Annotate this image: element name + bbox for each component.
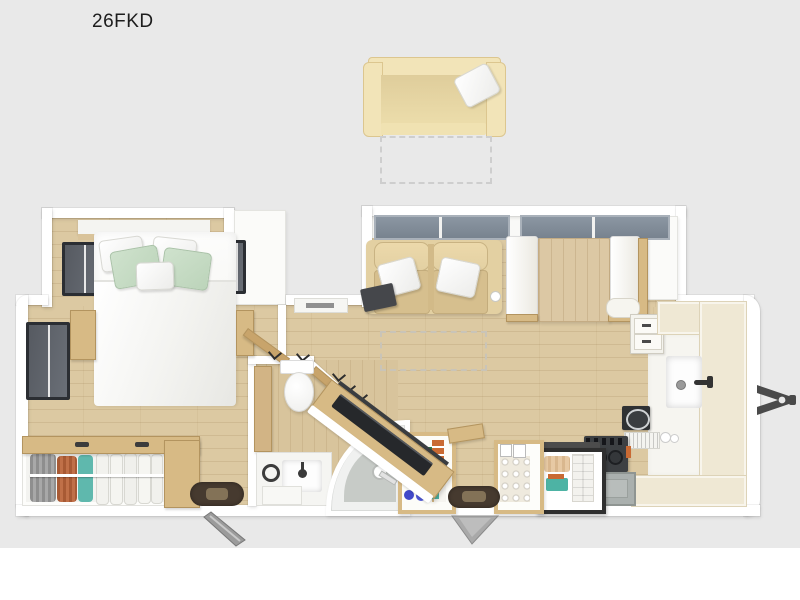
clothes-white-5: [151, 454, 163, 504]
clothes-white-4: [138, 454, 151, 504]
vanity-lower-cabinet: [262, 486, 302, 505]
fridge-food-orange: [548, 474, 564, 479]
clothes-white-3: [124, 453, 137, 505]
bedroom-slideout-wall-top: [42, 208, 234, 218]
rear-wall-window: [26, 322, 70, 400]
fridge-food-bread: [544, 456, 570, 472]
fridge-door-rack: [572, 454, 594, 502]
clothes-white-2: [110, 454, 123, 505]
main-entry-step: [452, 516, 498, 544]
hall-vent-slot: [306, 303, 334, 308]
bed-duvet: [94, 280, 236, 406]
dinette-bench-left-base: [506, 314, 538, 322]
clothes-white-1: [96, 453, 109, 505]
bedroom-entry-door: [204, 512, 245, 546]
nightstand-left: [70, 310, 96, 360]
seat-center-console: [428, 244, 434, 310]
oven-inner: [605, 479, 628, 498]
refrigerator: [536, 448, 606, 514]
sofa-slide-outline: [380, 136, 492, 184]
spice-rack: [494, 440, 544, 514]
cup-holder: [490, 291, 501, 302]
sink-drain: [676, 380, 686, 390]
a-frame-hitch: [757, 385, 792, 415]
hall-overhead-cabinet: [294, 298, 348, 313]
drawer-handle-2: [642, 340, 651, 343]
kitchen-faucet-base: [707, 376, 713, 388]
bath-faucet-stem: [301, 462, 304, 471]
dinette-window: [520, 215, 670, 240]
page-margin-bottom: [0, 548, 800, 600]
fridge-food-teal: [546, 478, 568, 491]
wall-front-cap: [744, 295, 760, 516]
dinette-table: [538, 238, 610, 322]
toilet-paper-holder: [262, 464, 280, 482]
drawer-handle-1: [642, 324, 651, 327]
microwave: [622, 406, 650, 430]
floorplan-canvas: 26FKD: [0, 0, 800, 600]
main-entry-step-tread: [459, 518, 491, 537]
clothes-rail: [30, 474, 164, 477]
sofa-front-edge: [381, 123, 486, 135]
clothes-teal: [78, 455, 93, 502]
spice-jars: [500, 456, 530, 502]
living-window: [374, 215, 510, 240]
bath-wood-panel: [254, 366, 272, 452]
wall-bedroom-hall: [278, 305, 286, 357]
bedroom-entry-door-edge: [210, 516, 240, 541]
hitch-coupler-hole: [779, 397, 786, 404]
kitchen-counter-bottom: [632, 476, 746, 506]
clothes-orange: [57, 456, 77, 502]
spice-frame-1: [500, 444, 512, 457]
wardrobe-handle-1: [75, 442, 89, 447]
burner-2: [608, 450, 623, 465]
bedroom-door-mat-inner: [206, 488, 228, 500]
microwave-plate: [626, 409, 650, 430]
canister-2: [670, 434, 679, 443]
sofa-arm-left: [363, 62, 383, 137]
bedroom-slideout-wall-left: [42, 208, 52, 307]
optional-sofa: [363, 57, 504, 137]
range-handle: [626, 446, 631, 458]
main-entry-mat-inner: [462, 491, 486, 502]
wardrobe-handle-2: [135, 442, 149, 447]
hitch-jack: [789, 395, 796, 405]
plan-title: 26FKD: [92, 11, 154, 33]
sofa-option-floor-outline: [380, 331, 487, 371]
dinette-bench-left: [506, 236, 538, 318]
spice-frame-2: [513, 444, 526, 458]
clothes-gray: [30, 454, 56, 502]
bed-pillow-white-center: [136, 261, 175, 290]
toilet: [284, 372, 314, 412]
